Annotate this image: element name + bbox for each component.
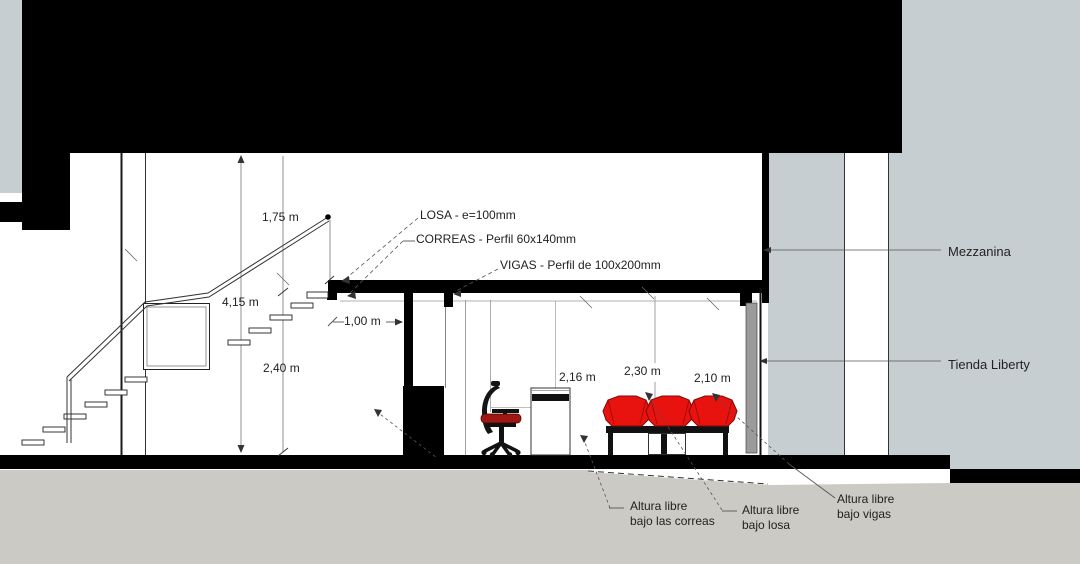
partition-wall-stem [404,293,413,386]
section-drawing [0,0,1080,564]
architectural-section-view: LOSA - e=100mm CORREAS - Perfil 60x140mm… [0,0,1080,564]
dimension-clear-under-correas: 2,16 m [559,370,596,384]
partition-wall-base [403,386,444,455]
staircase [22,214,331,445]
cabinet [531,388,570,455]
zone-label-mezzanina: Mezzanina [948,244,1011,260]
floor-slab-right [950,469,1080,483]
roof-mass [22,0,902,153]
light-shaft [845,153,888,455]
left-wall [22,153,70,230]
left-wall-tab [0,202,22,222]
dimension-clear-under-losa: 2,30 m [624,364,661,378]
shell-chair [603,396,651,426]
shell-chair [689,396,737,426]
handrail-post-top [325,214,331,220]
viga-section [444,293,453,307]
callout-vigas: VIGAS - Perfil de 100x200mm [500,258,661,272]
mezzanine-slab [328,280,762,293]
dimension-stair-gap: 1,00 m [344,314,381,328]
right-wall [762,150,769,303]
shell-chair [646,396,694,426]
callout-correas: CORREAS - Perfil 60x140mm [416,232,576,246]
dimension-rail-height: 1,75 m [262,210,299,224]
dimension-mezzanine-clear: 2,40 m [263,361,300,375]
zone-label-tienda-liberty: Tienda Liberty [948,357,1030,373]
dimension-clear-under-vigas: 2,10 m [694,371,731,385]
clearance-label-under-correas: Altura libre bajo las correas [630,499,715,529]
floor-slab [0,455,950,469]
bench [606,426,729,455]
dimension-overall-height: 4,15 m [222,295,259,309]
clearance-label-under-vigas: Altura libre bajo vigas [837,492,894,522]
stair-opening [144,304,210,370]
chair-seat [481,414,521,423]
red-shell-chairs [603,396,737,426]
correa-section [327,293,337,300]
office-chair [481,381,521,457]
chair-base [485,443,517,454]
right-wall-lower [746,288,761,455]
clearance-label-under-losa: Altura libre bajo losa [742,503,799,533]
chair-armrest [492,409,519,413]
callout-losa: LOSA - e=100mm [420,208,516,222]
ground [0,469,1080,564]
